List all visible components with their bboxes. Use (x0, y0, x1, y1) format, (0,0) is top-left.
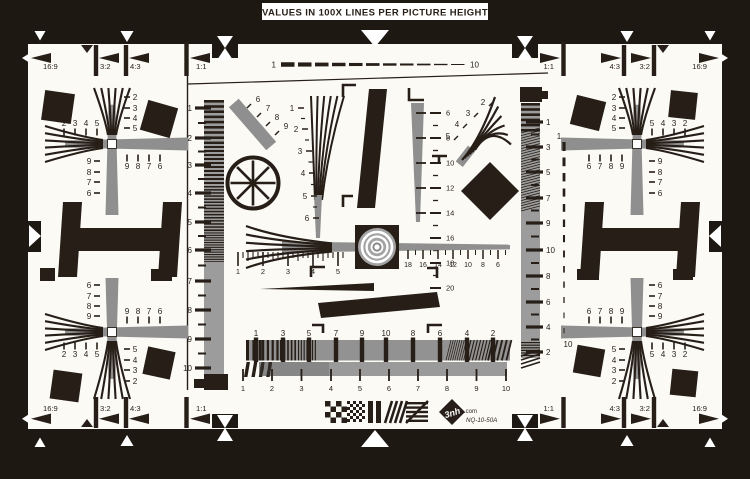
chart-graphic (520, 87, 542, 102)
scale-number: 6 (387, 384, 391, 393)
scale-number: 1 (241, 384, 245, 393)
chart-graphic (204, 261, 224, 262)
scale-number: 8 (275, 113, 280, 122)
scale-number: 4 (133, 114, 138, 123)
scale-number: 8 (481, 262, 485, 269)
scale-number: 6 (158, 307, 163, 316)
scale-number: 8 (609, 307, 614, 316)
scale-number: 7 (598, 307, 603, 316)
scale-number: 5 (303, 192, 308, 201)
scale-number: 3 (672, 350, 677, 359)
aspect-ratio-label: 3:2 (100, 404, 111, 413)
scale-number: 4 (612, 356, 617, 365)
chart-graphic (301, 369, 303, 381)
chart-graphic (267, 340, 269, 361)
aspect-ratio-label: 16:9 (692, 62, 707, 71)
chart-graphic (287, 340, 289, 361)
chart-graphic (204, 232, 224, 233)
scale-number: 8 (609, 162, 614, 171)
scale-number: 3 (298, 147, 303, 156)
chart-graphic (526, 196, 543, 199)
scale-number: 8 (87, 168, 92, 177)
chart-graphic (204, 205, 224, 207)
scale-number: 1 (236, 267, 240, 276)
scale-number: 7 (266, 104, 271, 113)
chart-graphic (272, 340, 274, 361)
scale-number: 6 (587, 307, 592, 316)
chart-graphic (334, 338, 338, 363)
chart-graphic (325, 401, 331, 407)
chart-graphic (94, 45, 98, 76)
chart-graphic (465, 338, 469, 363)
scale-number: 10 (470, 61, 479, 70)
scale-number: 8 (546, 272, 551, 281)
scale-number: 4 (84, 119, 89, 128)
scale-number: 10 (183, 364, 192, 373)
chart-graphic (573, 345, 605, 377)
chart-graphic (184, 397, 188, 428)
chart-graphic (204, 154, 224, 156)
scale-number: 4 (612, 114, 617, 123)
scale-number: 3 (188, 161, 193, 170)
chart-graphic (204, 230, 224, 231)
scale-number: 16 (419, 262, 427, 269)
chart-graphic (204, 110, 224, 113)
scale-number: 7 (598, 162, 603, 171)
chart-graphic (356, 404, 359, 407)
chart-graphic (353, 407, 356, 410)
scale-number: 3 (286, 267, 290, 276)
chart-graphic (526, 248, 543, 251)
scale-number: 3 (612, 104, 617, 113)
chart-graphic (204, 244, 224, 245)
chart-graphic (307, 338, 311, 363)
scale-number: 2 (62, 350, 67, 359)
chart-graphic (142, 346, 175, 379)
scale-number: 2 (612, 377, 617, 386)
chart-graphic (246, 340, 249, 361)
scale-number: 6 (658, 189, 663, 198)
scale-number: 2 (270, 384, 274, 393)
chart-graphic (198, 324, 206, 326)
scale-number: 2 (133, 377, 138, 386)
scale-number: 8 (658, 168, 663, 177)
chart-graphic (259, 340, 262, 361)
scale-number: 5 (95, 350, 100, 359)
chart-graphic (388, 369, 390, 381)
chart-graphic (531, 159, 539, 161)
scale-number: 9 (125, 162, 130, 171)
chart-graphic (356, 416, 359, 419)
chart-graphic (195, 220, 211, 223)
scale-number: 9 (546, 219, 551, 228)
chart-graphic (531, 262, 539, 264)
scale-number: 6 (158, 162, 163, 171)
scale-number: 10 (564, 340, 573, 349)
scale-number: 4 (546, 323, 551, 332)
scale-number: 4 (465, 329, 470, 338)
aspect-ratio-label: 1:1 (196, 62, 207, 71)
chart-graphic (561, 42, 565, 76)
scale-number: 9 (620, 162, 625, 171)
scale-number: 3 (281, 329, 286, 338)
scale-number: 8 (188, 306, 193, 315)
aspect-ratio-label: 1:1 (543, 62, 554, 71)
chart-graphic (291, 340, 293, 361)
chart-graphic (195, 191, 211, 194)
chart-graphic (531, 314, 539, 316)
chart-graphic (360, 338, 364, 363)
scale-number: 5 (650, 119, 655, 128)
chart-graphic (362, 410, 365, 413)
scale-number: 6 (658, 281, 663, 290)
chart-graphic (331, 407, 337, 413)
scale-number: 6 (305, 214, 310, 223)
scale-number: 5 (446, 132, 451, 141)
chart-graphic (521, 124, 540, 127)
scale-number: 6 (188, 246, 193, 255)
scale-number: 9 (87, 312, 92, 321)
scale-number: 2 (261, 267, 265, 276)
chart-graphic (41, 90, 75, 124)
scale-number: 5 (95, 119, 100, 128)
chart-graphic (531, 210, 539, 212)
chart-graphic (342, 407, 348, 413)
scale-number: 10 (446, 159, 454, 168)
scale-number: 14 (446, 209, 454, 218)
chart-graphic (204, 186, 224, 188)
chart-graphic (204, 131, 224, 134)
chart-graphic (353, 419, 356, 422)
scale-number: 9 (658, 312, 663, 321)
chart-graphic (417, 369, 419, 381)
chart-graphic (195, 106, 211, 109)
chart-graphic (204, 226, 224, 228)
chart-graphic (204, 116, 224, 119)
chart-graphic (526, 300, 543, 303)
aspect-ratio-label: 3:2 (639, 62, 650, 71)
scale-number: 12 (446, 184, 454, 193)
scale-number: 5 (336, 267, 340, 276)
chart-graphic (294, 340, 296, 361)
chart-graphic (359, 401, 362, 404)
scale-number: 3 (466, 109, 471, 118)
scale-number: 5 (133, 124, 138, 133)
chart-graphic (362, 416, 365, 419)
chart-graphic (204, 254, 224, 255)
scale-number: 10 (546, 246, 555, 255)
chart-graphic (541, 91, 548, 99)
scale-number: 16 (446, 234, 454, 243)
chart-graphic (359, 419, 362, 422)
scale-number: 7 (546, 194, 551, 203)
chart-graphic (204, 100, 224, 103)
chart-graphic (633, 328, 642, 337)
chart-graphic (243, 362, 507, 376)
chart-graphic (204, 146, 224, 148)
chart-graphic (204, 217, 224, 219)
chart-graphic (204, 198, 224, 200)
chart-graphic (362, 404, 365, 407)
scale-number: 10 (502, 384, 510, 393)
chart-graphic (204, 214, 224, 216)
chart-graphic (491, 338, 495, 363)
aspect-ratio-label: 4:3 (130, 62, 141, 71)
chart-graphic (526, 325, 543, 328)
chart-graphic (652, 397, 656, 428)
chart-graphic (359, 407, 362, 410)
chart-graphic (204, 142, 224, 144)
chart-graphic (204, 170, 224, 172)
scale-number: 7 (658, 292, 663, 301)
chart-graphic (376, 401, 381, 423)
scale-number: 1 (557, 132, 562, 141)
chart-graphic (521, 103, 540, 106)
logo-domain: .com (464, 409, 477, 415)
scale-number: 1 (272, 61, 277, 70)
chart-graphic (347, 413, 350, 416)
scale-number: 7 (87, 292, 92, 301)
scale-number: 1 (546, 118, 551, 127)
scale-number: 2 (188, 134, 193, 143)
chart-graphic (526, 145, 543, 148)
chart-graphic (406, 415, 428, 417)
chart-graphic (526, 170, 543, 173)
chart-graphic (204, 247, 224, 248)
scale-number: 6 (496, 262, 500, 269)
scale-number: 8 (658, 302, 663, 311)
scale-number: 4 (661, 350, 666, 359)
scale-number: 2 (133, 93, 138, 102)
chart-graphic (446, 369, 448, 381)
scale-number: 3 (546, 143, 551, 152)
scale-number: 2 (683, 119, 688, 128)
chart-graphic (521, 345, 540, 346)
chart-graphic (94, 397, 98, 428)
scale-number: 8 (136, 162, 141, 171)
chart-graphic (622, 397, 626, 428)
chart-graphic (336, 401, 342, 407)
scale-number: 7 (87, 178, 92, 187)
scale-number: 5 (650, 350, 655, 359)
aspect-ratio-label: 1:1 (196, 404, 207, 413)
chart-graphic (204, 235, 224, 236)
chart-graphic (347, 401, 350, 404)
chart-graphic (304, 340, 305, 361)
chart-graphic (531, 339, 539, 341)
chart-graphic (204, 211, 224, 213)
chart-graphic (670, 369, 699, 398)
scale-number: 3 (133, 104, 138, 113)
chart-graphic (359, 413, 362, 416)
chart-graphic (184, 42, 188, 76)
scale-number: 9 (188, 335, 193, 344)
scale-number: 3 (299, 384, 303, 393)
scale-number: 7 (334, 329, 339, 338)
chart-graphic (40, 268, 55, 281)
scale-number: 1 (290, 104, 295, 113)
aspect-ratio-label: 3:2 (639, 404, 650, 413)
chart-graphic (198, 353, 206, 355)
scale-number: 4 (661, 119, 666, 128)
chart-graphic (526, 274, 543, 277)
scale-number: 7 (147, 162, 152, 171)
scale-number: 7 (147, 307, 152, 316)
scale-number: 5 (612, 345, 617, 354)
chart-graphic (301, 340, 302, 361)
aspect-ratio-label: 3:2 (100, 62, 111, 71)
chart-graphic (505, 369, 507, 381)
scale-number: 10 (382, 329, 391, 338)
scale-number: 3 (612, 366, 617, 375)
chart-graphic (526, 350, 543, 353)
scale-number: 3 (672, 119, 677, 128)
chart-graphic (194, 379, 205, 388)
scale-number: 2 (683, 350, 688, 359)
chart-graphic (254, 338, 258, 363)
chart-graphic (204, 252, 224, 253)
chart-graphic (356, 410, 359, 413)
scale-number: 5 (612, 124, 617, 133)
chart-graphic (195, 279, 211, 282)
chart-graphic (336, 412, 342, 418)
scale-number: 2 (62, 119, 67, 128)
aspect-ratio-label: 16:9 (43, 404, 58, 413)
chart-graphic (195, 136, 211, 139)
scale-number: 9 (620, 307, 625, 316)
scale-number: 1 (188, 104, 193, 113)
scale-number: 3 (73, 350, 78, 359)
chart-graphic (526, 221, 543, 224)
aspect-ratio-label: 4:3 (130, 404, 141, 413)
chart-graphic (652, 45, 656, 76)
scale-number: 5 (358, 384, 362, 393)
scale-number: 18 (404, 262, 412, 269)
chart-graphic (406, 406, 428, 408)
scale-number: 6 (587, 162, 592, 171)
scale-number: 2 (481, 98, 486, 107)
chart-graphic (347, 407, 350, 410)
chart-graphic (195, 248, 211, 251)
chart-graphic (242, 369, 244, 381)
chart-graphic (195, 366, 211, 369)
chart-graphic (438, 338, 442, 363)
scale-number: 4 (329, 384, 333, 393)
logo-model: NQ-10-50A (466, 417, 497, 424)
chart-graphic (262, 340, 264, 361)
aspect-ratio-label: 4:3 (609, 62, 620, 71)
scale-number: 8 (87, 302, 92, 311)
scale-number: 9 (125, 307, 130, 316)
chart-graphic (204, 189, 224, 191)
chart-graphic (331, 418, 337, 424)
chart-graphic (359, 369, 361, 381)
chart-graphic (298, 340, 299, 361)
banner-text: VALUES IN 100X LINES PER PICTURE HEIGHT (262, 8, 488, 19)
scale-number: 9 (474, 384, 478, 393)
chart-graphic (526, 120, 543, 123)
scale-number: 4 (133, 356, 138, 365)
chart-graphic (204, 237, 224, 238)
chart-graphic (411, 338, 415, 363)
chart-graphic (50, 370, 83, 403)
chart-graphic (204, 158, 224, 160)
scale-number: 2 (491, 329, 496, 338)
chart-graphic (204, 256, 224, 257)
scale-number: 9 (360, 329, 365, 338)
scale-number: 7 (188, 277, 193, 286)
scale-number: 9 (284, 122, 289, 131)
chart-graphic (342, 418, 348, 424)
scale-number: 6 (87, 189, 92, 198)
scale-number: 4 (84, 350, 89, 359)
scale-number: 6 (446, 109, 450, 118)
scale-number: 5 (133, 345, 138, 354)
scale-number: 4 (188, 189, 193, 198)
chart-graphic (204, 259, 224, 260)
chart-graphic (124, 45, 128, 76)
resolution-test-chart-page: VALUES IN 100X LINES PER PICTURE HEIGHT1… (0, 0, 750, 479)
scale-number: 4 (301, 169, 306, 178)
chart-graphic (198, 235, 206, 237)
chart-graphic (204, 195, 224, 197)
chart-graphic (204, 150, 224, 152)
chart-graphic (204, 202, 224, 204)
aspect-ratio-label: 4:3 (609, 404, 620, 413)
chart-graphic (78, 228, 163, 251)
scale-number: 3 (133, 366, 138, 375)
chart-graphic (384, 338, 388, 363)
aspect-ratio-label: 16:9 (692, 404, 707, 413)
chart-graphic (204, 121, 224, 124)
chart-graphic (330, 369, 332, 381)
chart-graphic (353, 401, 356, 404)
chart-graphic (368, 401, 373, 423)
chart-graphic (195, 308, 211, 311)
scale-number: 7 (658, 178, 663, 187)
scale-number: 1 (254, 329, 259, 338)
chart-graphic (204, 242, 224, 243)
chart-graphic (668, 90, 698, 120)
scale-number: 9 (87, 157, 92, 166)
scale-number: 2 (612, 93, 617, 102)
chart-graphic (521, 342, 540, 343)
aspect-ratio-label: 16:9 (43, 62, 58, 71)
chart-graphic (204, 178, 224, 180)
chart-graphic (204, 174, 224, 176)
chart-graphic (531, 134, 539, 136)
chart-graphic (350, 410, 353, 413)
scale-number: 8 (445, 384, 449, 393)
chart-graphic (347, 419, 350, 422)
chart-graphic (124, 397, 128, 428)
chart-graphic (521, 347, 540, 348)
chart-graphic (195, 337, 211, 340)
top-banner: VALUES IN 100X LINES PER PICTURE HEIGHT (262, 3, 488, 20)
scale-number: 6 (438, 329, 443, 338)
chart-graphic (531, 184, 539, 186)
chart-graphic (633, 140, 642, 149)
scale-number: 2 (546, 348, 551, 357)
chart-graphic (531, 236, 539, 238)
chart-graphic (521, 113, 540, 116)
iso-resolution-test-chart: VALUES IN 100X LINES PER PICTURE HEIGHT1… (0, 0, 750, 479)
chart-graphic (204, 374, 228, 390)
chart-graphic (198, 151, 206, 153)
scale-number: 6 (256, 95, 261, 104)
chart-graphic (108, 140, 117, 149)
scale-number: 20 (446, 284, 454, 293)
